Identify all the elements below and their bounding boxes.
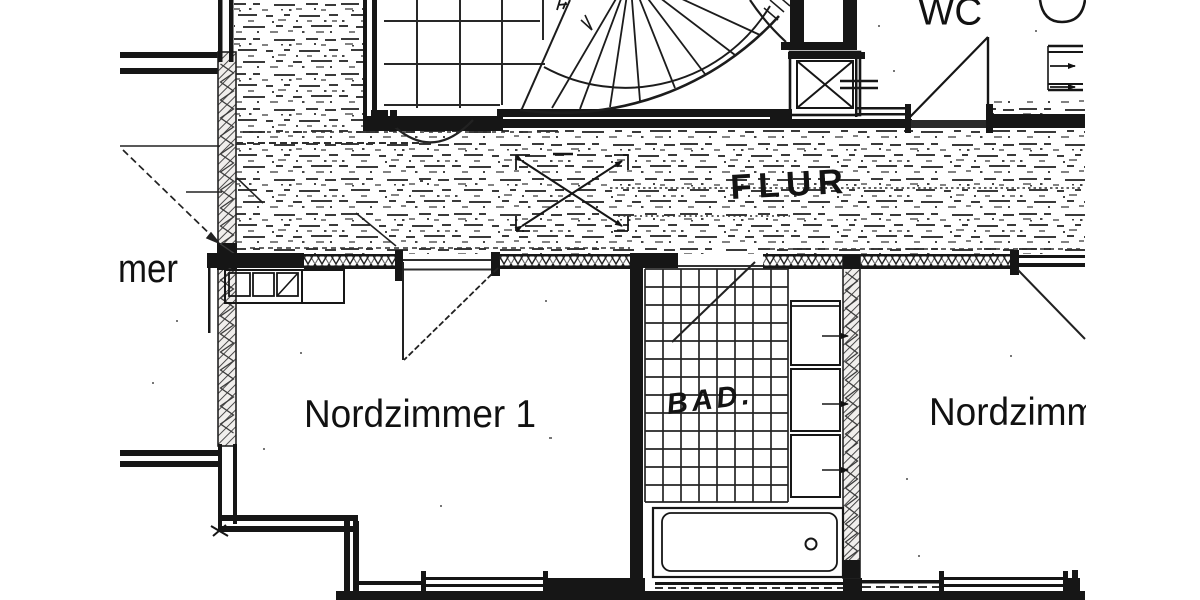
svg-text:Nordzimmer 1: Nordzimmer 1 [304, 393, 536, 436]
svg-text:WC: WC [918, 0, 982, 34]
svg-text:mer: mer [118, 247, 178, 291]
svg-text:FLUR: FLUR [729, 162, 850, 207]
